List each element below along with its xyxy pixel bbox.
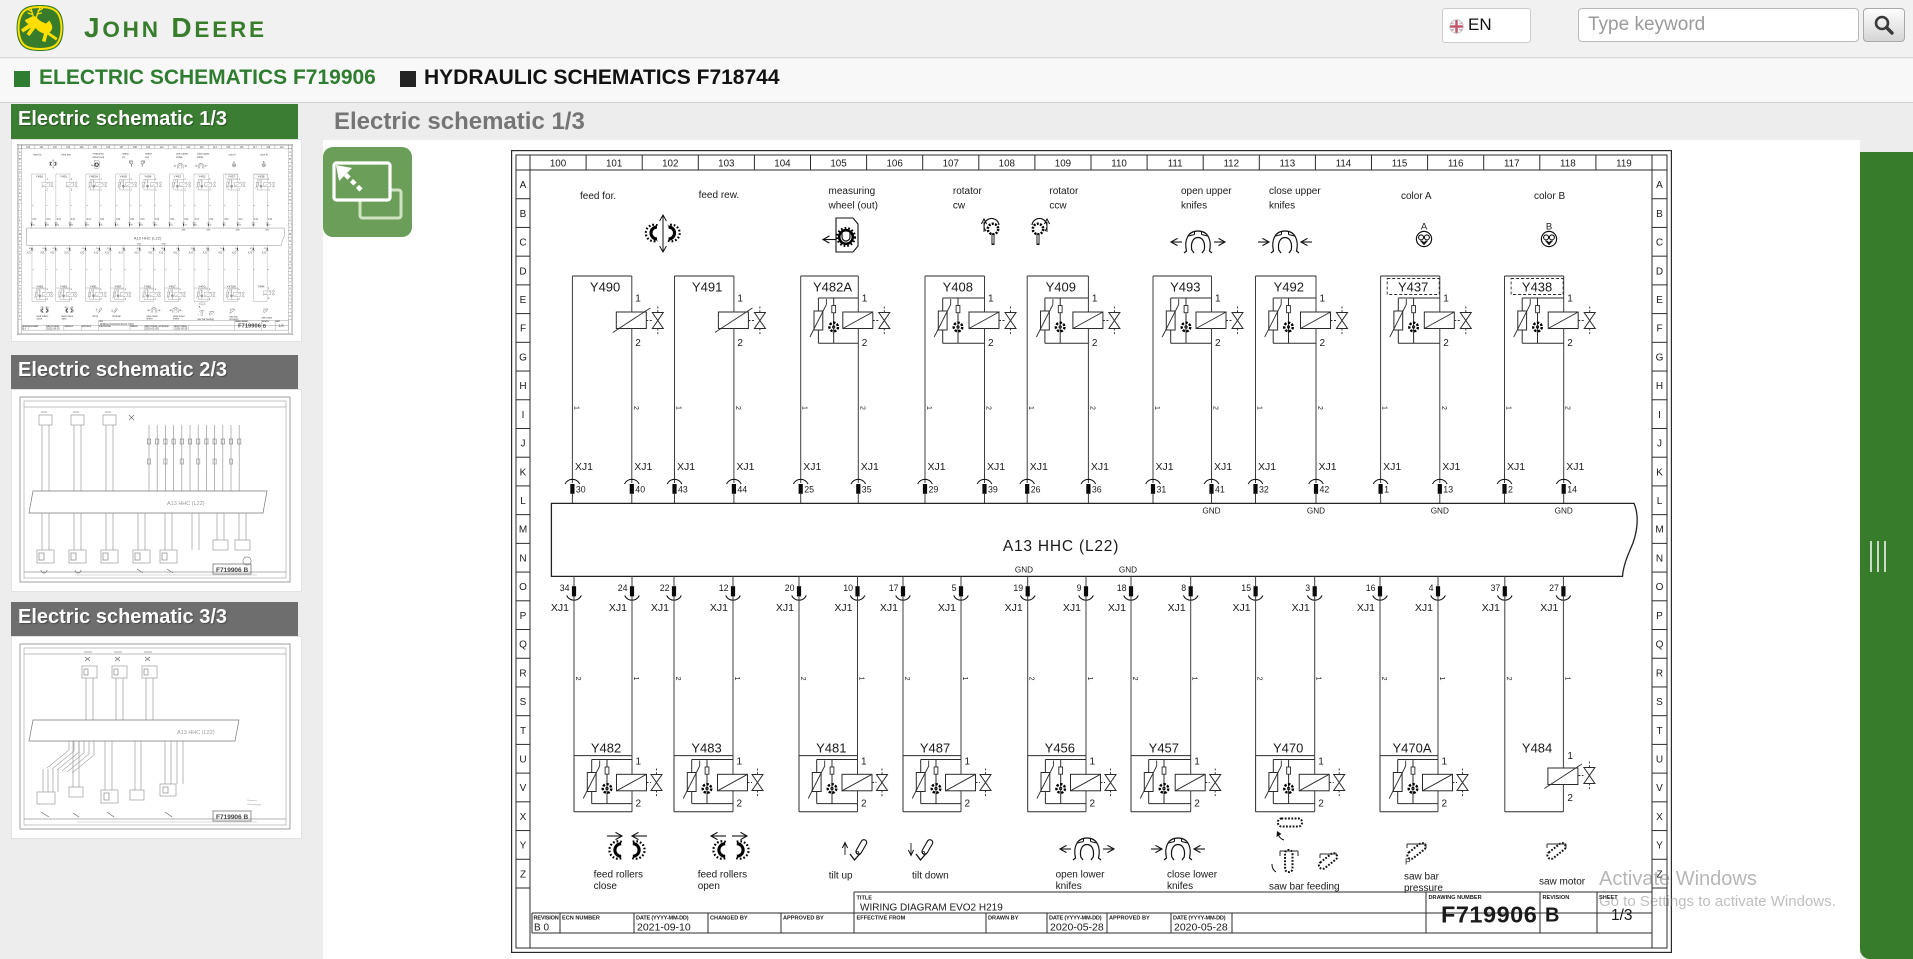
svg-text:T: T <box>1656 726 1662 737</box>
svg-text:2: 2 <box>1131 677 1138 681</box>
svg-text:ccw: ccw <box>1049 201 1067 212</box>
svg-text:1: 1 <box>1086 677 1093 681</box>
svg-text:XJ1: XJ1 <box>1214 461 1232 473</box>
svg-text:2: 2 <box>737 799 743 810</box>
svg-text:B: B <box>1545 905 1559 927</box>
svg-text:Y483: Y483 <box>691 741 721 756</box>
svg-text:2: 2 <box>862 338 868 349</box>
svg-text:Y487: Y487 <box>920 741 950 756</box>
svg-text:1: 1 <box>861 757 867 768</box>
svg-text:2: 2 <box>632 406 639 410</box>
svg-text:S: S <box>1656 697 1663 708</box>
svg-text:Y: Y <box>1656 841 1663 852</box>
svg-text:42: 42 <box>1320 485 1330 495</box>
svg-text:1: 1 <box>1505 406 1512 410</box>
svg-text:E: E <box>1656 295 1663 306</box>
svg-text:2: 2 <box>965 799 971 810</box>
svg-text:XJ1: XJ1 <box>861 461 879 473</box>
svg-text:tilt up: tilt up <box>829 871 853 882</box>
svg-text:8: 8 <box>1181 583 1186 593</box>
svg-text:2: 2 <box>1028 677 1035 681</box>
svg-text:2: 2 <box>1318 799 1324 810</box>
svg-text:feed rollers: feed rollers <box>698 870 747 881</box>
svg-text:A13 HHC (L22): A13 HHC (L22) <box>167 501 205 507</box>
svg-text:Y470: Y470 <box>1273 741 1303 756</box>
svg-text:close upper: close upper <box>1269 186 1321 197</box>
svg-text:104: 104 <box>774 159 791 170</box>
svg-text:Y409: Y409 <box>1046 280 1076 295</box>
svg-text:37: 37 <box>1491 583 1501 593</box>
svg-text:1: 1 <box>733 677 740 681</box>
svg-text:N: N <box>1656 553 1663 564</box>
svg-text:2: 2 <box>1567 338 1573 349</box>
svg-text:18: 18 <box>1117 583 1127 593</box>
svg-text:1: 1 <box>1256 406 1263 410</box>
svg-text:2: 2 <box>1508 485 1513 495</box>
svg-text:32: 32 <box>1259 485 1269 495</box>
svg-text:20: 20 <box>785 583 795 593</box>
svg-text:L: L <box>520 496 526 507</box>
svg-text:Y456: Y456 <box>1045 741 1075 756</box>
svg-text:feed rew.: feed rew. <box>699 190 740 201</box>
svg-text:XJ1: XJ1 <box>1566 461 1584 473</box>
svg-text:XJ1: XJ1 <box>1108 602 1126 614</box>
svg-text:ECN NUMBER: ECN NUMBER <box>562 916 600 922</box>
svg-text:M: M <box>1655 525 1663 536</box>
svg-text:2: 2 <box>903 677 910 681</box>
svg-text:5: 5 <box>952 583 957 593</box>
svg-text:1: 1 <box>737 757 743 768</box>
svg-text:1: 1 <box>675 406 682 410</box>
svg-text:2: 2 <box>988 338 994 349</box>
svg-text:113: 113 <box>1280 159 1296 170</box>
svg-text:XJ1: XJ1 <box>1168 602 1186 614</box>
svg-text:measuring: measuring <box>829 186 876 197</box>
svg-text:feed for.: feed for. <box>580 191 616 202</box>
svg-text:110: 110 <box>1111 159 1127 170</box>
svg-text:2: 2 <box>1215 338 1221 349</box>
svg-text:N: N <box>519 553 526 564</box>
svg-text:100: 100 <box>550 159 567 170</box>
svg-text:XJ1: XJ1 <box>880 602 898 614</box>
svg-text:117: 117 <box>1504 159 1520 170</box>
svg-text:1: 1 <box>862 294 868 305</box>
svg-text:DRAWING NUMBER: DRAWING NUMBER <box>1429 895 1482 901</box>
svg-text:34: 34 <box>560 583 570 593</box>
svg-text:101: 101 <box>606 159 622 170</box>
svg-text:2: 2 <box>799 677 806 681</box>
svg-text:wheel (out): wheel (out) <box>828 201 878 212</box>
svg-text:2: 2 <box>1194 799 1200 810</box>
svg-text:Y438: Y438 <box>1522 280 1552 295</box>
svg-text:2: 2 <box>1567 793 1573 804</box>
svg-text:XJ1: XJ1 <box>928 461 946 473</box>
svg-text:1: 1 <box>1384 485 1389 495</box>
svg-text:GND: GND <box>1015 566 1033 575</box>
svg-text:XJ1: XJ1 <box>651 602 669 614</box>
svg-text:knifes: knifes <box>1181 201 1207 212</box>
svg-text:R: R <box>1656 668 1663 679</box>
svg-text:107: 107 <box>943 159 959 170</box>
svg-text:1: 1 <box>1442 757 1448 768</box>
svg-text:105: 105 <box>830 159 847 170</box>
svg-text:1: 1 <box>1381 406 1388 410</box>
svg-text:A: A <box>520 180 527 191</box>
svg-text:Y482: Y482 <box>591 741 621 756</box>
svg-text:B: B <box>520 209 527 220</box>
svg-text:K: K <box>1656 467 1663 478</box>
svg-text:D: D <box>519 266 526 277</box>
svg-text:XJ1: XJ1 <box>736 461 754 473</box>
svg-text:1: 1 <box>1153 406 1160 410</box>
svg-text:F719906: F719906 <box>1441 902 1537 928</box>
svg-text:2: 2 <box>734 406 741 410</box>
svg-text:O: O <box>519 582 527 593</box>
svg-text:APPROVED BY: APPROVED BY <box>783 916 824 922</box>
svg-text:XJ1: XJ1 <box>803 461 821 473</box>
svg-text:Y490: Y490 <box>590 280 620 295</box>
svg-text:T: T <box>520 726 526 737</box>
svg-text:112: 112 <box>1223 159 1239 170</box>
svg-text:2: 2 <box>1090 799 1096 810</box>
svg-text:J: J <box>521 439 526 450</box>
svg-text:U: U <box>519 755 526 766</box>
svg-text:D: D <box>1656 266 1663 277</box>
svg-text:XJ1: XJ1 <box>1063 602 1081 614</box>
svg-text:2: 2 <box>1505 677 1512 681</box>
svg-text:2: 2 <box>1256 677 1263 681</box>
svg-text:GND: GND <box>1307 507 1325 516</box>
svg-text:2: 2 <box>1442 799 1448 810</box>
svg-text:1: 1 <box>961 677 968 681</box>
svg-text:Y481: Y481 <box>816 741 846 756</box>
svg-text:22: 22 <box>660 583 670 593</box>
svg-text:Y457: Y457 <box>1149 741 1179 756</box>
svg-text:Y482A: Y482A <box>813 280 852 295</box>
svg-text:2: 2 <box>1212 406 1219 410</box>
svg-text:106: 106 <box>886 159 903 170</box>
svg-text:knifes: knifes <box>1269 201 1295 212</box>
svg-text:rotator: rotator <box>1049 186 1079 197</box>
svg-text:A13 HHC (L22): A13 HHC (L22) <box>1003 538 1119 555</box>
svg-text:2: 2 <box>1443 338 1449 349</box>
svg-text:J: J <box>1657 439 1662 450</box>
svg-text:knifes: knifes <box>1167 881 1193 892</box>
svg-text:2: 2 <box>574 677 581 681</box>
svg-text:2: 2 <box>858 406 865 410</box>
svg-text:2: 2 <box>1088 406 1095 410</box>
svg-text:P: P <box>520 611 527 622</box>
svg-text:25: 25 <box>804 485 814 495</box>
svg-text:14: 14 <box>1567 485 1577 495</box>
svg-text:GND: GND <box>1202 507 1220 516</box>
svg-text:REVISION: REVISION <box>534 916 559 922</box>
svg-text:XJ1: XJ1 <box>634 461 652 473</box>
svg-text:31: 31 <box>1157 485 1167 495</box>
svg-text:2: 2 <box>635 338 641 349</box>
svg-text:XJ1: XJ1 <box>1233 602 1251 614</box>
svg-text:2020-05-28: 2020-05-28 <box>1050 922 1104 934</box>
svg-text:F719906 B: F719906 B <box>216 814 248 821</box>
svg-text:cw: cw <box>953 201 966 212</box>
svg-text:1: 1 <box>1563 677 1570 681</box>
svg-text:109: 109 <box>1055 159 1071 170</box>
svg-text:2: 2 <box>674 677 681 681</box>
svg-text:2: 2 <box>737 338 743 349</box>
svg-text:saw bar feeding: saw bar feeding <box>1269 882 1340 893</box>
svg-text:XJ1: XJ1 <box>710 602 728 614</box>
svg-text:44: 44 <box>737 485 747 495</box>
svg-text:U: U <box>1656 755 1663 766</box>
svg-text:XJ1: XJ1 <box>1156 461 1174 473</box>
svg-text:1: 1 <box>1438 677 1445 681</box>
svg-text:1: 1 <box>1567 294 1573 305</box>
svg-text:open: open <box>698 881 720 892</box>
svg-text:3: 3 <box>1305 583 1310 593</box>
svg-text:XJ1: XJ1 <box>1292 602 1310 614</box>
svg-text:P: P <box>1656 611 1663 622</box>
svg-text:2: 2 <box>1380 677 1387 681</box>
svg-text:41: 41 <box>1215 485 1225 495</box>
svg-text:close: close <box>594 881 618 892</box>
svg-text:36: 36 <box>1092 485 1102 495</box>
svg-text:4: 4 <box>1429 583 1434 593</box>
svg-text:CHANGED BY: CHANGED BY <box>710 916 748 922</box>
svg-text:2021-09-10: 2021-09-10 <box>637 922 691 934</box>
svg-text:I: I <box>1658 410 1661 421</box>
svg-text:XJ1: XJ1 <box>776 602 794 614</box>
svg-text:C: C <box>1656 238 1663 249</box>
svg-text:B 0: B 0 <box>534 923 549 934</box>
svg-text:116: 116 <box>1448 159 1464 170</box>
svg-text:114: 114 <box>1336 159 1352 170</box>
svg-text:X: X <box>520 812 527 823</box>
svg-text:L: L <box>1657 496 1663 507</box>
svg-text:TITLE: TITLE <box>857 896 873 902</box>
svg-text:115: 115 <box>1392 159 1408 170</box>
svg-text:X: X <box>1656 812 1663 823</box>
svg-text:Y408: Y408 <box>943 280 973 295</box>
svg-text:XJ1: XJ1 <box>677 461 695 473</box>
svg-text:F719906 B: F719906 B <box>216 567 248 574</box>
svg-text:2: 2 <box>1320 338 1326 349</box>
svg-text:XJ1: XJ1 <box>1507 461 1525 473</box>
svg-text:rotator: rotator <box>953 186 983 197</box>
svg-text:saw motor: saw motor <box>1539 877 1586 888</box>
svg-text:E: E <box>520 295 527 306</box>
svg-text:2: 2 <box>1440 406 1447 410</box>
svg-text:1: 1 <box>632 677 639 681</box>
svg-text:XJ1: XJ1 <box>1540 602 1558 614</box>
svg-text:119: 119 <box>1616 159 1632 170</box>
svg-text:24: 24 <box>618 583 628 593</box>
svg-text:35: 35 <box>862 485 872 495</box>
svg-text:B: B <box>1656 209 1663 220</box>
svg-text:19: 19 <box>1013 583 1023 593</box>
svg-text:27: 27 <box>1549 583 1559 593</box>
svg-text:Y492: Y492 <box>1274 280 1304 295</box>
svg-text:WIRING DIAGRAM EVO2 H219: WIRING DIAGRAM EVO2 H219 <box>860 903 1003 914</box>
svg-text:2: 2 <box>985 406 992 410</box>
svg-text:29: 29 <box>929 485 939 495</box>
svg-text:2020-05-28: 2020-05-28 <box>1174 922 1228 934</box>
svg-text:feed rollers: feed rollers <box>594 870 643 881</box>
svg-text:XJ1: XJ1 <box>1030 461 1048 473</box>
svg-text:knifes: knifes <box>1056 881 1082 892</box>
svg-text:V: V <box>520 783 527 794</box>
svg-text:1: 1 <box>572 406 579 410</box>
svg-text:open upper: open upper <box>1181 186 1232 197</box>
svg-text:XJ1: XJ1 <box>1383 461 1401 473</box>
svg-text:EFFECTIVE FROM: EFFECTIVE FROM <box>857 916 906 922</box>
svg-text:1: 1 <box>737 294 743 305</box>
svg-text:12: 12 <box>719 583 729 593</box>
svg-text:A: A <box>1656 180 1663 191</box>
svg-text:2: 2 <box>636 799 642 810</box>
svg-text:1: 1 <box>636 757 642 768</box>
svg-text:1: 1 <box>1567 751 1573 762</box>
svg-text:XJ1: XJ1 <box>834 602 852 614</box>
svg-text:1: 1 <box>1320 294 1326 305</box>
svg-text:1: 1 <box>1191 677 1198 681</box>
svg-text:GND: GND <box>1431 507 1449 516</box>
svg-text:XJ1: XJ1 <box>609 602 627 614</box>
svg-text:I: I <box>522 410 525 421</box>
svg-text:open lower: open lower <box>1056 870 1106 881</box>
svg-text:APPROVED BY: APPROVED BY <box>1109 916 1150 922</box>
svg-text:XJ1: XJ1 <box>551 602 569 614</box>
svg-text:111: 111 <box>1168 159 1183 170</box>
svg-text:1: 1 <box>925 406 932 410</box>
svg-text:Q: Q <box>519 640 527 651</box>
svg-text:XJ1: XJ1 <box>575 461 593 473</box>
svg-text:color A: color A <box>1401 191 1432 202</box>
svg-text:XJ1: XJ1 <box>1319 461 1337 473</box>
svg-text:GND: GND <box>1119 566 1137 575</box>
svg-text:2: 2 <box>861 799 867 810</box>
svg-text:R: R <box>519 668 526 679</box>
svg-text:1: 1 <box>858 677 865 681</box>
svg-text:O: O <box>1656 582 1664 593</box>
svg-text:30: 30 <box>576 485 586 495</box>
svg-text:F: F <box>1656 324 1662 335</box>
svg-text:K: K <box>520 467 527 478</box>
svg-text:close lower: close lower <box>1167 870 1218 881</box>
svg-text:1: 1 <box>801 406 808 410</box>
svg-text:XJ1: XJ1 <box>1415 602 1433 614</box>
svg-text:V: V <box>1656 783 1663 794</box>
svg-text:2: 2 <box>1092 338 1098 349</box>
svg-text:XJ1: XJ1 <box>1258 461 1276 473</box>
svg-text:108: 108 <box>999 159 1016 170</box>
svg-text:1: 1 <box>1027 406 1034 410</box>
svg-text:43: 43 <box>678 485 688 495</box>
svg-text:XJ1: XJ1 <box>938 602 956 614</box>
svg-text:G: G <box>1656 352 1664 363</box>
svg-text:DRAWN BY: DRAWN BY <box>988 916 1019 922</box>
svg-text:2: 2 <box>1316 406 1323 410</box>
svg-text:16: 16 <box>1366 583 1376 593</box>
svg-text:REVISION: REVISION <box>1543 895 1570 901</box>
svg-text:color B: color B <box>1534 191 1565 202</box>
svg-text:F: F <box>520 324 526 335</box>
svg-text:A13 HHC (L22): A13 HHC (L22) <box>177 730 215 736</box>
svg-text:1: 1 <box>635 294 641 305</box>
svg-text:XJ1: XJ1 <box>1091 461 1109 473</box>
svg-text:XJ1: XJ1 <box>1482 602 1500 614</box>
svg-text:103: 103 <box>718 159 735 170</box>
svg-text:Y491: Y491 <box>692 280 722 295</box>
svg-text:1: 1 <box>1090 757 1096 768</box>
svg-text:118: 118 <box>1560 159 1576 170</box>
svg-text:1: 1 <box>988 294 994 305</box>
svg-text:1: 1 <box>1443 294 1449 305</box>
svg-text:1: 1 <box>1315 677 1322 681</box>
svg-text:1: 1 <box>1092 294 1098 305</box>
svg-text:Y484: Y484 <box>1522 741 1552 756</box>
svg-text:Z: Z <box>520 869 526 880</box>
svg-text:Y493: Y493 <box>1170 280 1200 295</box>
svg-text:H: H <box>1656 381 1663 392</box>
svg-text:XJ1: XJ1 <box>1357 602 1375 614</box>
svg-text:15: 15 <box>1241 583 1251 593</box>
svg-text:C: C <box>519 238 526 249</box>
svg-text:saw bar: saw bar <box>1404 872 1440 883</box>
svg-text:Y437: Y437 <box>1398 280 1428 295</box>
svg-text:2: 2 <box>1564 406 1571 410</box>
svg-text:Q: Q <box>1656 640 1664 651</box>
svg-text:XJ1: XJ1 <box>1005 602 1023 614</box>
svg-text:102: 102 <box>662 159 678 170</box>
svg-text:13: 13 <box>1443 485 1453 495</box>
svg-text:XJ1: XJ1 <box>1442 461 1460 473</box>
svg-text:40: 40 <box>635 485 645 495</box>
svg-text:39: 39 <box>988 485 998 495</box>
svg-text:26: 26 <box>1031 485 1041 495</box>
svg-text:17: 17 <box>889 583 899 593</box>
svg-text:S: S <box>520 697 527 708</box>
svg-text:H: H <box>519 381 526 392</box>
svg-text:1: 1 <box>965 757 971 768</box>
svg-text:1: 1 <box>1194 757 1200 768</box>
svg-text:tilt down: tilt down <box>912 871 949 882</box>
svg-text:10: 10 <box>843 583 853 593</box>
svg-text:1: 1 <box>1318 757 1324 768</box>
svg-text:Y470A: Y470A <box>1392 741 1431 756</box>
svg-text:XJ1: XJ1 <box>987 461 1005 473</box>
svg-text:M: M <box>519 525 527 536</box>
svg-text:Y: Y <box>520 841 527 852</box>
svg-text:P: P <box>1405 857 1411 867</box>
svg-text:G: G <box>519 352 527 363</box>
svg-text:1: 1 <box>1215 294 1221 305</box>
svg-text:GND: GND <box>1555 507 1573 516</box>
svg-text:9: 9 <box>1077 583 1082 593</box>
